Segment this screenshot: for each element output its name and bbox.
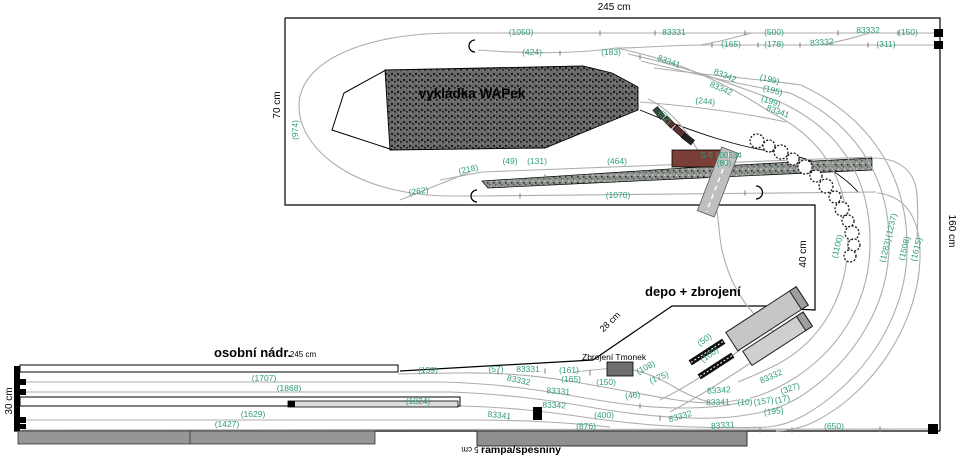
measure-label: (1868): [277, 383, 302, 393]
tree-icon: [750, 134, 764, 148]
measure-label: (183): [601, 47, 621, 57]
loco-box: [533, 407, 542, 420]
measure-label: (464): [607, 156, 627, 166]
measure-label: (178): [764, 39, 784, 49]
depot-title: depo + zbrojení: [645, 284, 741, 299]
measure-label: (244): [695, 95, 716, 107]
buffer-stop: [928, 424, 938, 434]
tree-icon: [848, 239, 860, 251]
measure-label: 83332: [810, 36, 835, 48]
measure-label: (1100): [829, 233, 845, 259]
dimension-label: 70 cm: [272, 91, 283, 118]
board-edge: [285, 18, 815, 310]
measure-label: (1070): [606, 190, 631, 200]
measure-label: 83332: [856, 25, 880, 35]
unloading-title: vykládka WAPek: [419, 86, 526, 101]
dimension-label: 40 cm: [798, 240, 809, 267]
measure-label: (1050): [509, 27, 534, 37]
measure-label: (262): [408, 185, 429, 198]
platform-strip: [288, 401, 458, 407]
buffer-stop: [934, 29, 943, 37]
tree-icon: [787, 153, 799, 165]
measure-label: 83331: [516, 364, 540, 374]
measure-label: (974): [290, 120, 300, 140]
armory-label: Zbrojení Tmonek: [582, 352, 647, 362]
station-title: osobní nádr.: [214, 345, 291, 360]
tree-icon: [842, 215, 854, 227]
measure-label: (876): [576, 421, 596, 431]
track-line: [628, 54, 780, 102]
loop-symbol-icon: [756, 186, 763, 199]
measure-label: 83341: [487, 409, 512, 421]
measure-label: (218): [458, 162, 480, 176]
measure-label: (1824): [406, 396, 431, 406]
buffer-stop: [934, 41, 943, 49]
measure-label: 83332: [667, 408, 693, 424]
tree-icon: [798, 160, 812, 174]
measure-label: 83332: [506, 373, 531, 388]
track-line: [477, 192, 876, 196]
track-line: [616, 48, 770, 112]
measure-label: (159): [418, 365, 438, 375]
unloading-area: [385, 66, 638, 150]
bridge-length-label: (80): [717, 159, 732, 168]
dimension-label: 160 cm: [946, 215, 957, 248]
measure-label: 83342: [542, 400, 566, 411]
measure-label: (150): [898, 27, 918, 37]
measure-label: 83331: [662, 27, 686, 37]
terrain-line: [332, 70, 393, 150]
tree-icon: [829, 191, 841, 203]
measure-label: (1427): [215, 419, 240, 429]
ramp-left: [18, 431, 375, 444]
track-plan-svg: (1050)83331(500)83332(150)(165)(178)8333…: [0, 0, 960, 464]
track-line: [22, 429, 931, 430]
buffer-stop: [19, 389, 26, 395]
platform-top: [20, 365, 398, 372]
dimension-label: 245 cm: [290, 350, 317, 359]
measure-label: (57): [488, 364, 503, 374]
measure-label: (1283): [877, 237, 893, 263]
buffer-stop: [19, 417, 26, 423]
measure-label: 83342: [707, 384, 732, 396]
dimension-label: 30 cm: [4, 387, 15, 414]
tree-icon: [810, 170, 822, 182]
measure-label: (1237): [883, 212, 899, 238]
track-line: [22, 420, 610, 427]
measure-label: (500): [764, 27, 784, 37]
tree-icon: [845, 226, 859, 240]
measure-label: (10): [737, 397, 752, 407]
dimension-label: 28 cm: [598, 310, 623, 334]
tree-icon: [835, 202, 849, 216]
loop-symbol-icon: [469, 40, 475, 52]
tree-icon: [774, 145, 788, 159]
measure-label: 83341: [706, 397, 730, 408]
dimension-label: 5 cm: [461, 445, 479, 454]
measure-label: (311): [876, 39, 895, 49]
measure-label: (195): [763, 405, 784, 417]
measure-label: (400): [594, 410, 614, 420]
armory-box: [607, 362, 633, 376]
measure-label: 83332: [758, 367, 784, 386]
measure-label: (424): [522, 47, 542, 57]
track-line: [478, 48, 616, 53]
measure-label: (165): [561, 374, 581, 384]
measure-label: (165): [721, 39, 741, 49]
measure-label: (1629): [241, 409, 266, 419]
tree-icon: [763, 140, 775, 152]
ramp-label: rampa/spesniny: [481, 444, 561, 456]
measure-label: (46): [624, 389, 641, 401]
dimension-label: 245 cm: [598, 2, 631, 13]
tree-icon: [819, 179, 833, 193]
buffer-stop: [19, 424, 26, 429]
measure-label: (150): [596, 377, 616, 387]
measure-label: 83331: [711, 419, 736, 431]
track-plan-page: (1050)83331(500)83332(150)(165)(178)8333…: [0, 0, 960, 464]
buffer-stop: [19, 379, 26, 385]
measure-label: (1707): [252, 373, 277, 383]
measure-label: (50): [695, 331, 713, 348]
measure-label: (131): [527, 156, 547, 166]
tree-icon: [844, 250, 856, 262]
measure-label: (49): [502, 156, 517, 166]
measure-label: (17): [774, 392, 791, 405]
track-line: [295, 406, 768, 428]
measure-label: (650): [824, 421, 844, 431]
measure-label: 83331: [546, 385, 571, 397]
platform-strip-cap: [288, 401, 295, 407]
